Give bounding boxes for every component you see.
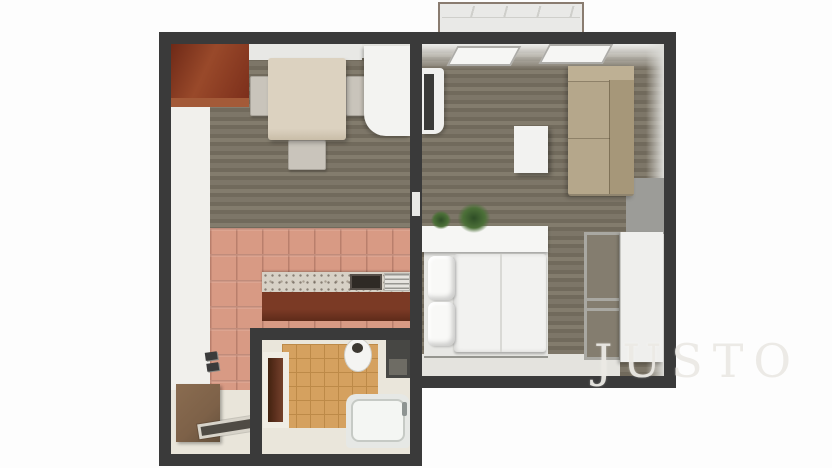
fridge <box>364 46 410 136</box>
wall-left <box>159 32 171 466</box>
dining-table <box>268 58 346 140</box>
stove <box>350 274 382 290</box>
wall-intercom <box>205 351 220 371</box>
bathtub <box>346 394 410 448</box>
plant-large <box>452 198 496 238</box>
floor-plan: JUSTO <box>0 0 832 468</box>
bathtub-faucet <box>402 402 407 416</box>
balcony-railing <box>442 6 580 18</box>
wall-divider <box>410 32 422 466</box>
washing-machine-door <box>389 359 407 375</box>
sofa-seam <box>568 138 610 139</box>
plant-small <box>428 208 454 232</box>
bathroom-wall-left <box>250 328 262 466</box>
bathroom-door <box>268 358 283 422</box>
justo-watermark: JUSTO <box>594 334 801 388</box>
bathtub-basin <box>351 399 405 442</box>
wall-bottom-left <box>159 454 422 466</box>
kitchen-corner-cabinet <box>171 44 249 107</box>
shelf <box>587 298 619 301</box>
washing-machine <box>386 334 410 378</box>
shelf <box>587 308 619 311</box>
sofa <box>568 66 634 196</box>
bed-pillow-1 <box>428 256 455 300</box>
bed-pillow-2 <box>428 302 455 346</box>
kitchen-counter-front <box>262 292 410 321</box>
balcony <box>438 2 584 34</box>
bed-duvet <box>454 254 546 352</box>
wall-radiator <box>412 192 420 216</box>
tv <box>424 74 434 130</box>
bathroom-wall-top <box>250 328 410 340</box>
toilet <box>344 338 372 372</box>
living-window-pane-2 <box>539 44 614 64</box>
toilet-seat <box>352 343 363 353</box>
living-window-pane-1 <box>447 46 522 66</box>
kitchen-sink <box>384 273 410 291</box>
dining-chair-bottom <box>288 140 326 170</box>
sofa-backrest <box>609 80 634 194</box>
coffee-table <box>514 126 548 173</box>
